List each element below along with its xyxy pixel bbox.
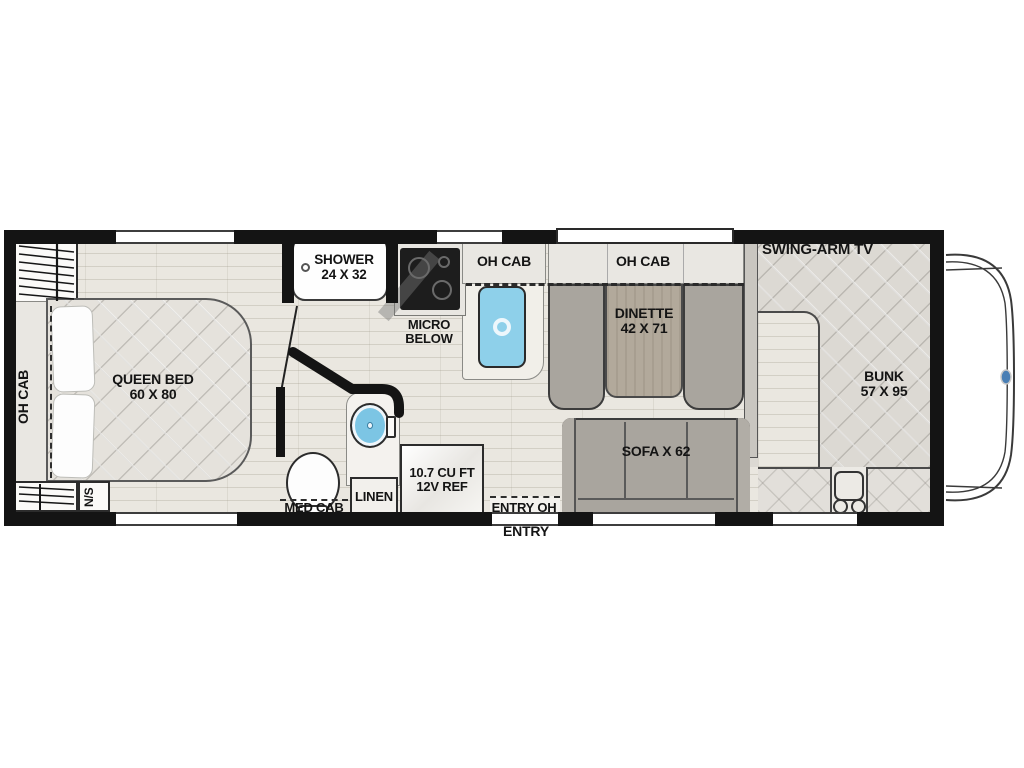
window-bedroom-bottom	[116, 512, 237, 526]
wall-bottom	[715, 512, 773, 526]
med-cab-label: MED CAB	[278, 501, 350, 515]
fridge-label: 10.7 CU FT 12V REF	[400, 466, 484, 495]
brand-logo	[1001, 370, 1011, 384]
window-sofa	[593, 512, 715, 526]
rear-oh-cab-label: OH CAB	[16, 352, 42, 442]
bunk-label: BUNK 57 X 95	[844, 369, 924, 400]
shower-label: SHOWER 24 X 32	[306, 253, 382, 283]
oh-cab-kitchen-label: OH CAB	[462, 254, 546, 269]
entry-oh-label: ENTRY OH	[486, 501, 562, 515]
wardrobe-rod-lines	[19, 242, 74, 301]
floorplan-canvas: SWING-ARM TV BUNK 57 X 95 OH CAB QUEEN B…	[0, 0, 1024, 768]
wall-front	[930, 230, 944, 526]
micro-below-label: MICRO BELOW	[396, 318, 462, 347]
window-kitchen	[437, 230, 502, 244]
wall-bottom	[237, 512, 492, 526]
dinette-label: DINETTE 42 X 71	[585, 306, 703, 337]
wall-top	[502, 230, 558, 244]
bathroom-door-wall	[293, 352, 352, 389]
window-dinette-slide	[556, 228, 734, 244]
entry-label: ENTRY	[492, 524, 560, 539]
wall-bottom	[10, 512, 116, 526]
oh-cab-dinette-label: OH CAB	[583, 254, 703, 269]
wall-bottom	[857, 512, 934, 526]
vanity-corner-wall	[352, 389, 399, 413]
wall-top	[10, 230, 116, 244]
nightstand-label: N/S	[83, 484, 105, 510]
sofa-label: SOFA X 62	[596, 444, 716, 459]
wall-bottom	[558, 512, 593, 526]
window-bedroom-top	[116, 230, 234, 244]
wardrobe-shelf-lines	[19, 484, 74, 510]
linen-label: LINEN	[350, 490, 398, 504]
swing-arm-tv-label: SWING-ARM TV	[762, 242, 892, 259]
bath-wall-stub	[276, 387, 285, 457]
window-cab-door	[773, 512, 857, 526]
queen-bed-label: QUEEN BED 60 X 80	[78, 372, 228, 403]
wall-top	[234, 230, 437, 244]
